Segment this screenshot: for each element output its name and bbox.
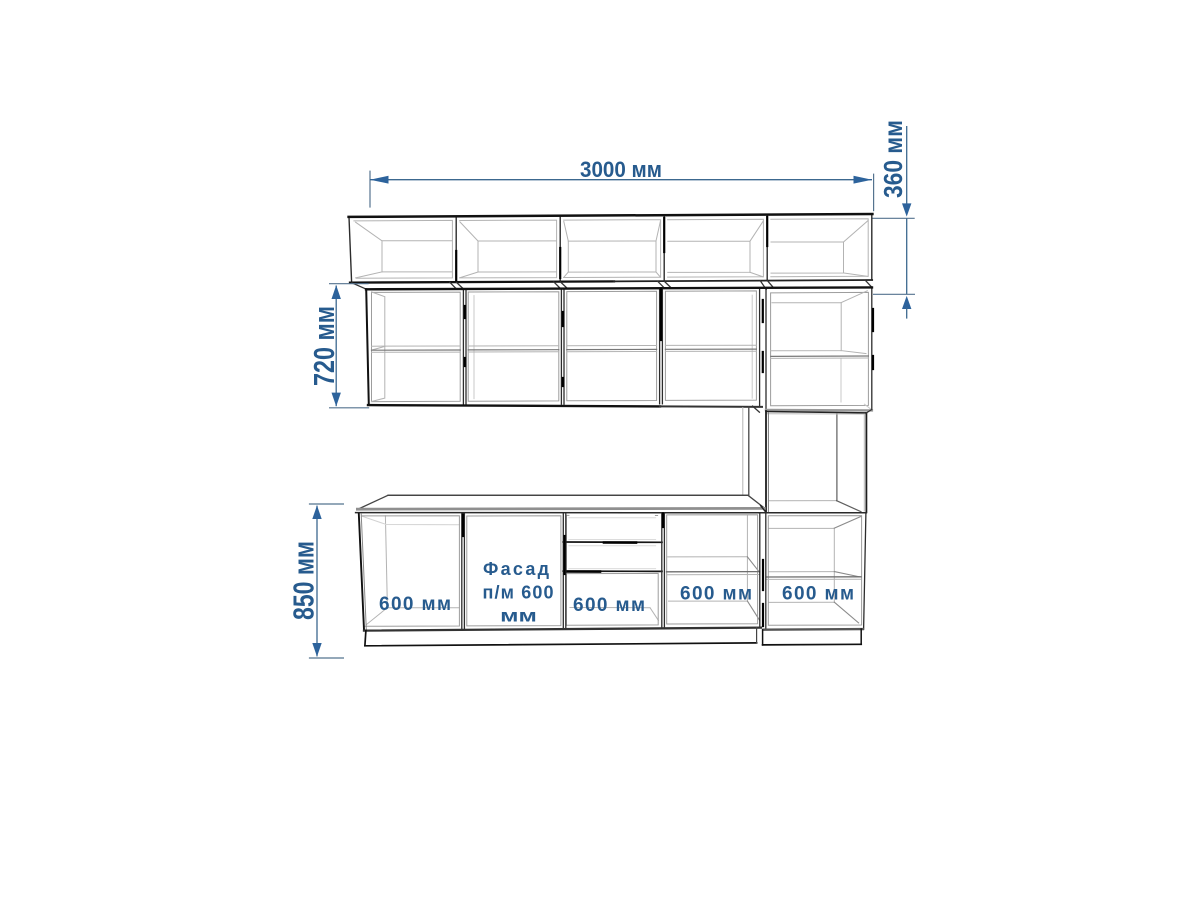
svg-text:мм: мм (500, 605, 537, 626)
svg-text:п/м 600: п/м 600 (483, 583, 554, 603)
svg-text:360 мм: 360 мм (878, 120, 908, 198)
svg-text:850 мм: 850 мм (289, 541, 321, 620)
svg-text:Фасад: Фасад (483, 559, 550, 579)
svg-text:3000 мм: 3000 мм (580, 157, 662, 182)
